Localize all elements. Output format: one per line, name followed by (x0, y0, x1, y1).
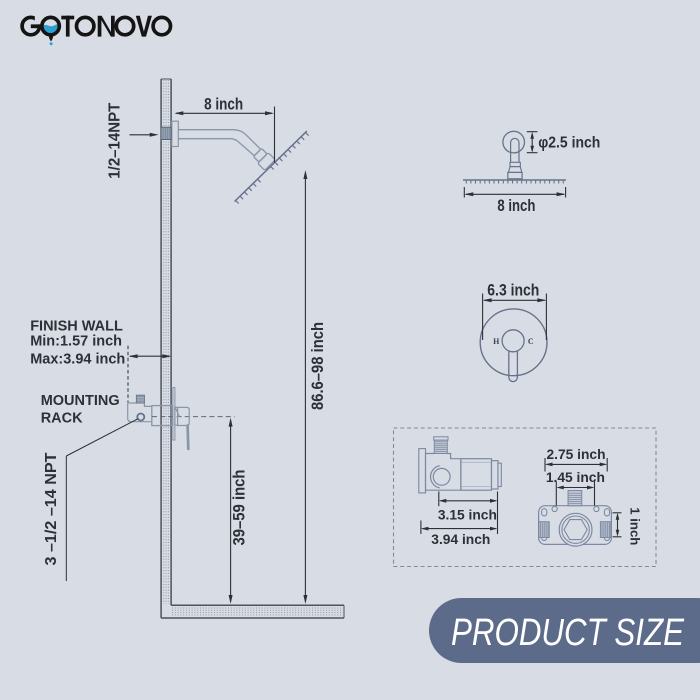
svg-text:φ2.5 inch: φ2.5 inch (538, 135, 600, 152)
svg-text:H: H (493, 337, 500, 346)
svg-text:Min:1.57 inch: Min:1.57 inch (30, 334, 122, 350)
svg-text:1/2–14NPT: 1/2–14NPT (107, 102, 124, 179)
svg-text:Max:3.94 inch: Max:3.94 inch (30, 351, 125, 367)
svg-text:6.3 inch: 6.3 inch (487, 281, 539, 299)
svg-text:1 inch: 1 inch (628, 507, 643, 545)
svg-text:3 –1/2 –14 NPT: 3 –1/2 –14 NPT (43, 452, 60, 566)
svg-text:86.6–98 inch: 86.6–98 inch (309, 322, 327, 410)
svg-text:PRODUCT SIZE: PRODUCT SIZE (451, 612, 685, 654)
svg-text:FINISH WALL: FINISH WALL (30, 319, 123, 335)
svg-text:3.15 inch: 3.15 inch (438, 508, 497, 523)
svg-text:8 inch: 8 inch (497, 196, 535, 215)
svg-text:MOUNTING: MOUNTING (41, 393, 120, 409)
svg-text:C: C (528, 337, 534, 346)
svg-text:3.94 inch: 3.94 inch (431, 532, 490, 547)
svg-text:1.45 inch: 1.45 inch (546, 470, 605, 485)
svg-text:RACK: RACK (41, 411, 83, 427)
svg-text:8 inch: 8 inch (204, 95, 243, 114)
svg-text:2.75 inch: 2.75 inch (546, 447, 605, 462)
svg-text:39–59 inch: 39–59 inch (230, 470, 248, 546)
